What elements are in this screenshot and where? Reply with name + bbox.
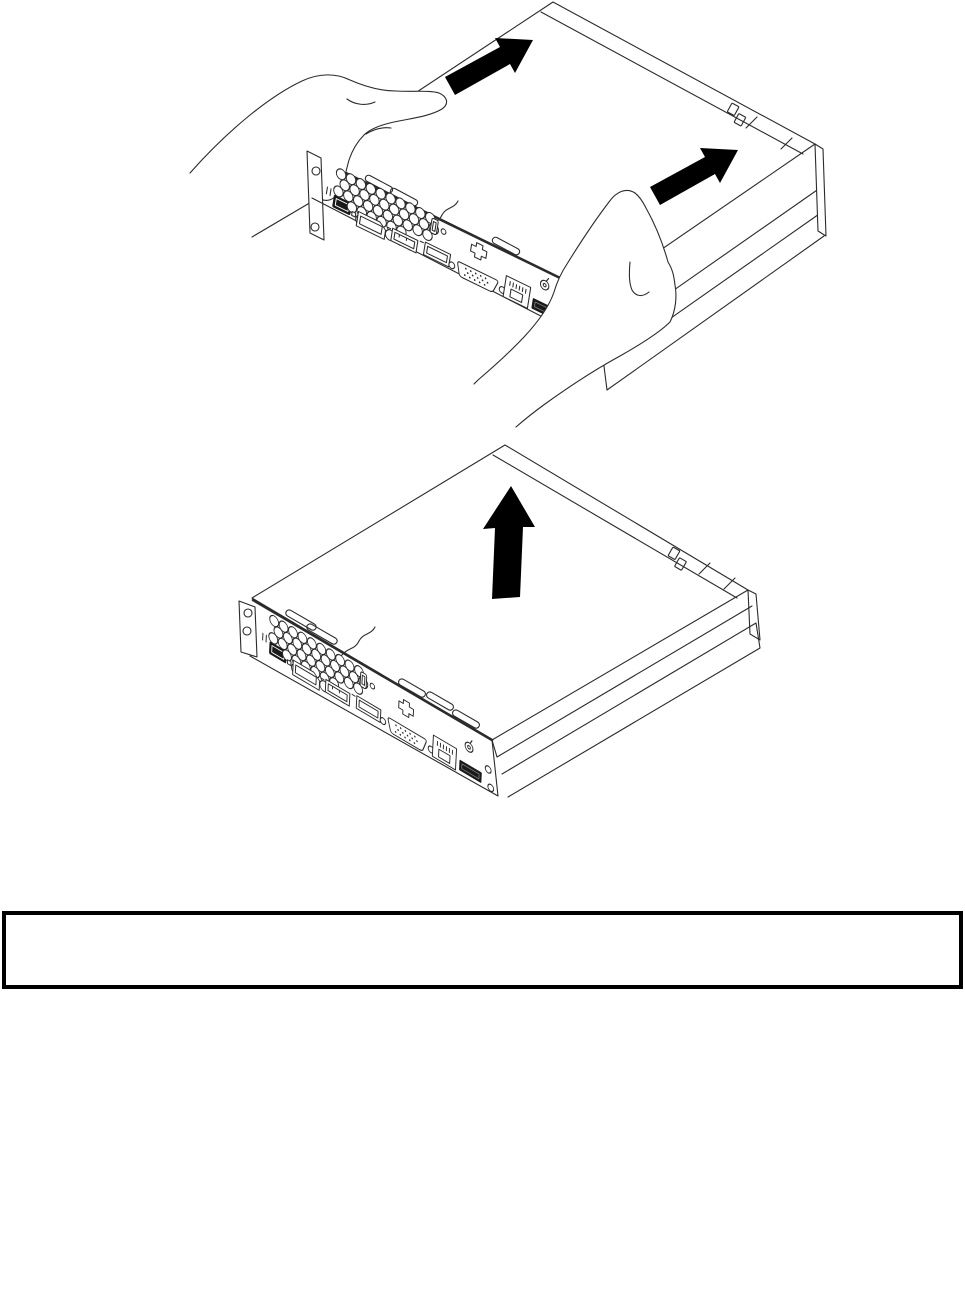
figure-slide-cover — [190, 2, 826, 427]
figure-lift-cover — [239, 445, 760, 797]
cover-removal-figures — [0, 0, 965, 810]
manual-page — [0, 0, 965, 1290]
cover-top-face — [317, 2, 815, 295]
note-box — [2, 911, 963, 989]
